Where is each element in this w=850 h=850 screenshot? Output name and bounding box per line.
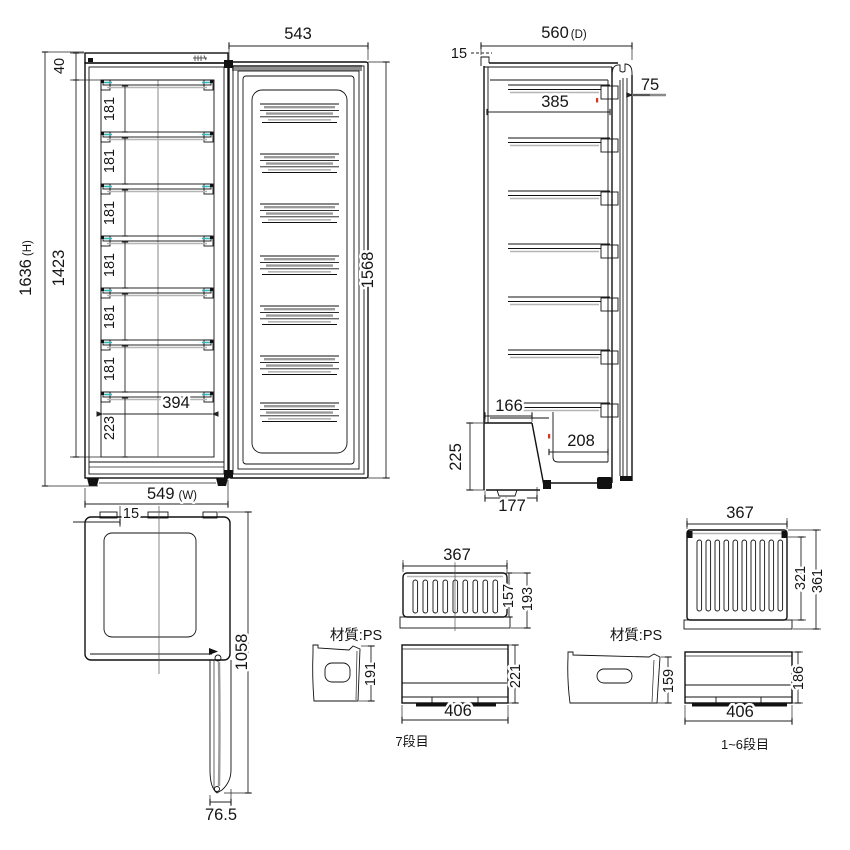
top-view-dimensions: 15 1058 76.5 [73,506,252,824]
dim-bottom-inner-width: 394 [162,394,190,412]
brand-logo-mark [193,56,207,62]
dim-door-open-width: 76.5 [205,806,237,824]
bottom-hinge [224,470,233,478]
dim-drawer7-front-height: 221 [508,664,524,688]
drawer-detail-7th: 367 157 193 材質:PS 191 221 406 [313,546,536,749]
red-mark-bottom [548,434,550,439]
drawer7-handle-hole [325,663,350,682]
drawer7-front-view [402,645,508,707]
material-label-1-6: 材質:PS [610,626,662,644]
dim-basket7-depth-inner: 157 [501,584,517,608]
dim-drawer16-front-height: 186 [791,666,807,690]
dim-shelf-pitch-2: 181 [102,149,118,173]
right-foot [216,478,228,486]
drawer16-side-profile [568,652,660,703]
dim-basket16-depth-outer: 361 [810,569,826,593]
dim-basket16-depth-inner: 321 [793,566,809,590]
drawing-canvas: 543 1636(H) 40 1423 181 181 181 181 [0,0,850,850]
dim-machine-room-height: 225 [447,443,465,471]
dim-shelf-pitch-5: 181 [102,305,118,329]
dim-base-width: 177 [498,497,526,515]
dim-door-front-offset: 75 [641,76,659,94]
front-view: 543 1636(H) 40 1423 181 181 181 181 [17,25,390,508]
top-outline [85,506,230,674]
dim-top-clearance: 40 [52,58,68,74]
dim-hinge-offset: 15 [123,506,139,522]
drawer16-front-view [685,652,792,707]
dim-overall-height: 1636(H) [17,240,35,296]
dim-machine-room-depth: 208 [567,432,595,450]
red-mark-top [596,98,598,103]
front-view-dimensions: 543 1636(H) 40 1423 181 181 181 181 [17,25,390,508]
dim-door-open-depth: 1058 [233,634,251,671]
hinge-pivot-arrow [209,648,218,655]
dim-interior-height: 1423 [50,250,68,287]
dim-shelf-pitch-6: 181 [102,357,118,381]
dim-basket7-depth-outer: 193 [520,587,536,611]
dim-drawer16-side-height: 159 [661,669,677,693]
dim-door-width: 543 [284,25,312,43]
dim-shelf-pitch-3: 181 [102,201,118,225]
top-view: 15 1058 76.5 [73,506,252,824]
open-door [224,60,368,478]
dim-shelf-pitch-4: 181 [102,253,118,277]
freezer-dimension-drawing: 543 1636(H) 40 1423 181 181 181 181 [0,0,850,850]
dim-overall-width: 549(W) [147,485,197,503]
drawer16-handle-hole [597,669,632,683]
dim-basket16-width: 367 [726,504,754,522]
dim-drawer7-front-width: 406 [444,702,472,720]
door-ribs [260,104,339,422]
side-outline [481,57,632,496]
rear-foot [497,490,517,496]
dim-shelf-pitch-1: 181 [102,97,118,121]
dim-machine-room-width: 166 [495,397,523,415]
drawer16-dimensions: 367 321 361 材質:PS 159 186 [610,504,826,725]
shelves [101,80,213,402]
door-open-90 [210,660,231,793]
side-view: 560(D) 15 75 385 166 225 208 [447,24,666,515]
side-top-hinge [612,64,632,81]
dim-overall-depth: 560(D) [541,24,587,42]
top-hinge [224,60,233,68]
dim-drawer16-front-width: 406 [726,703,754,721]
material-label-7: 材質:PS [330,626,382,644]
side-shelves [508,85,618,417]
front-roller [597,477,612,489]
dim-basket7-width: 367 [443,546,471,564]
drawer7-side-profile [313,645,360,701]
dim-door-height: 1568 [359,252,377,289]
basket7-top-view [400,560,510,631]
side-view-dimensions: 560(D) 15 75 385 166 225 208 [447,24,666,515]
dim-bottom-drawer-height: 223 [102,416,118,440]
drawer-detail-1-6: 367 321 361 材質:PS 159 186 [568,504,826,752]
dim-drawer7-side-height: 191 [363,662,379,686]
left-foot [87,478,99,486]
dim-rear-clearance: 15 [451,46,467,62]
dim-shelf-depth: 385 [541,93,569,111]
caption-7th-tier: 7段目 [395,734,428,749]
basket16-top-view [684,530,792,629]
caption-tiers-1-6: 1~6段目 [721,737,769,752]
